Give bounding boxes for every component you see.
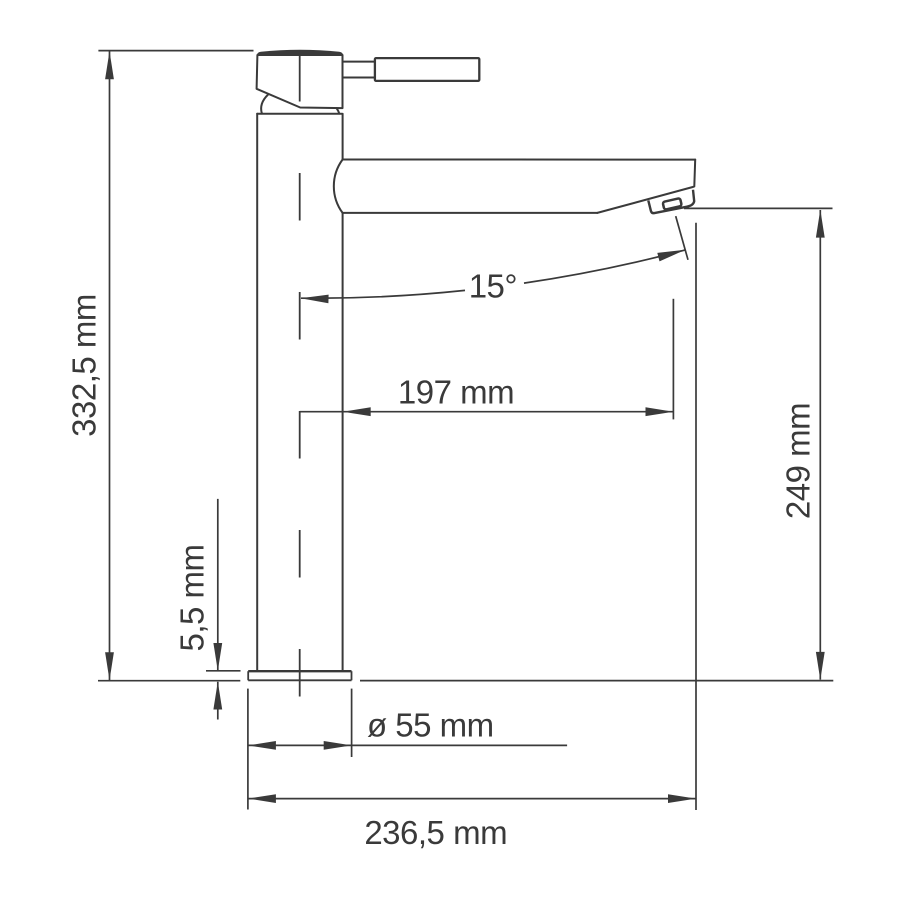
- svg-text:197 mm: 197 mm: [398, 373, 514, 410]
- svg-text:332,5 mm: 332,5 mm: [66, 294, 103, 437]
- svg-text:15°: 15°: [469, 268, 517, 305]
- svg-text:5,5 mm: 5,5 mm: [174, 544, 211, 651]
- svg-text:236,5 mm: 236,5 mm: [364, 814, 507, 851]
- svg-text:ø 55 mm: ø 55 mm: [367, 707, 494, 744]
- svg-text:249 mm: 249 mm: [780, 403, 817, 519]
